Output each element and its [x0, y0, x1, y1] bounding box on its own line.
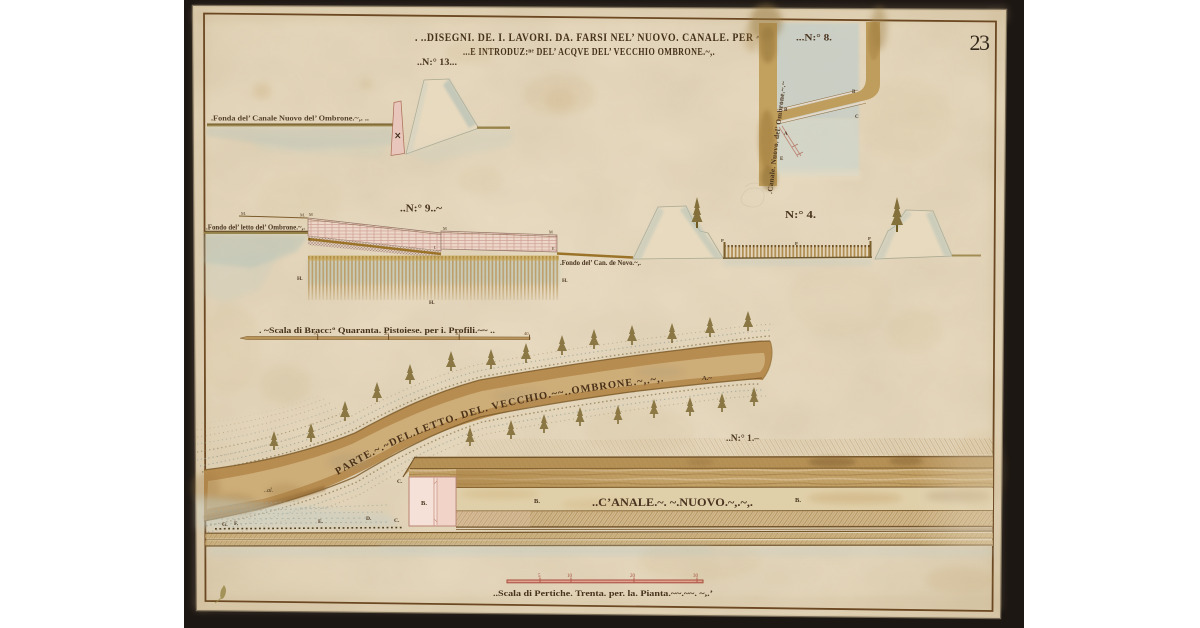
svg-text:A: A — [784, 132, 788, 137]
svg-text:10: 10 — [567, 574, 573, 579]
svg-text:P: P — [868, 236, 871, 241]
svg-text:20: 20 — [630, 574, 636, 579]
svg-text:C.: C. — [397, 479, 403, 485]
svg-text:E: E — [552, 246, 555, 251]
svg-text:N:° 4.: N:° 4. — [785, 209, 816, 221]
svg-text:M.: M. — [241, 211, 246, 216]
svg-text:...N:° 8.: ...N:° 8. — [796, 33, 832, 43]
svg-text:A.~: A.~ — [702, 375, 712, 382]
svg-text:H.: H. — [429, 300, 435, 306]
svg-text:20: 20 — [384, 331, 389, 336]
svg-text:B.: B. — [795, 497, 801, 504]
svg-text:H.: H. — [297, 276, 303, 282]
svg-text:10: 10 — [313, 331, 318, 336]
svg-text:P: P — [721, 238, 724, 243]
svg-text:.Fonda del’ Canale Nuovo del’: .Fonda del’ Canale Nuovo del’ Ombrone.~,… — [211, 115, 369, 123]
svg-text:G.: G. — [222, 522, 228, 528]
svg-text:M: M — [443, 226, 447, 231]
svg-text:..al.: ..al. — [264, 488, 273, 494]
svg-text:M: M — [549, 230, 553, 235]
svg-text:E.: E. — [318, 519, 324, 525]
svg-text:...E INTRODUZ:ⁿᵉ DEL’ ACQVE DE: ...E INTRODUZ:ⁿᵉ DEL’ ACQVE DEL’ VECCHIO… — [463, 47, 715, 58]
svg-text:I.: I. — [434, 245, 436, 250]
svg-text:..C’ANALE.~. ~.NUOVO.~,.~,.: ..C’ANALE.~. ~.NUOVO.~,.~,. — [592, 495, 753, 509]
svg-text:P: P — [795, 241, 798, 246]
svg-text:D.: D. — [366, 516, 372, 522]
svg-text:H.: H. — [562, 278, 568, 284]
svg-text:..Scala di Pertiche. Trenta. p: ..Scala di Pertiche. Trenta. per. la. Pi… — [493, 589, 713, 598]
svg-text:40: 40 — [524, 331, 529, 336]
svg-text:C.: C. — [394, 518, 400, 524]
svg-text:23: 23 — [970, 30, 991, 55]
svg-text:. ~Scala di Bracc:º Quaranta.: . ~Scala di Bracc:º Quaranta. Pistoiese.… — [259, 326, 495, 335]
svg-text:.Fondo del’ Can. de Novo.~,.: .Fondo del’ Can. de Novo.~,. — [560, 260, 641, 267]
svg-text:..N:° 9..~: ..N:° 9..~ — [400, 204, 443, 215]
svg-text:B.: B. — [534, 498, 540, 505]
svg-text:L: L — [309, 237, 312, 242]
svg-text:B.: B. — [421, 500, 427, 507]
svg-text:30: 30 — [455, 331, 460, 336]
svg-text:F.: F. — [234, 521, 239, 527]
